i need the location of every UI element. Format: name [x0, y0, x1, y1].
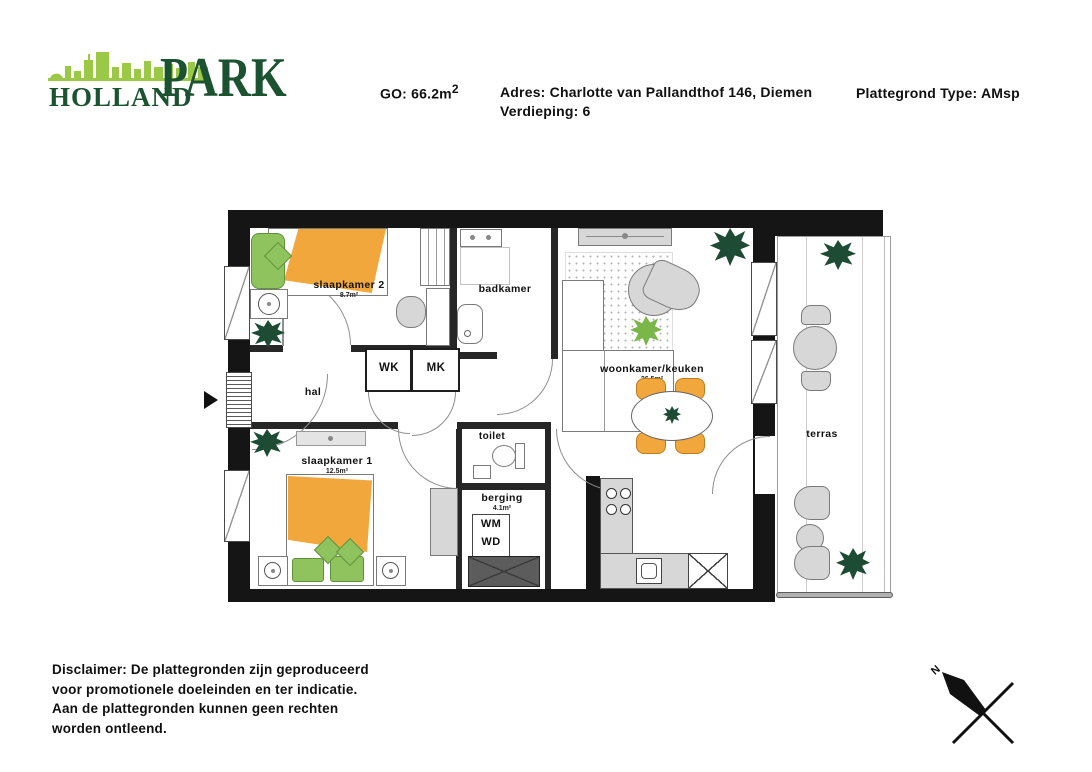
terras-chair [801, 371, 831, 391]
door-arc-slaapkamer1 [398, 429, 458, 489]
hob-burner [606, 504, 617, 515]
slaapkamer2-area: 8.7m² [340, 292, 358, 299]
badkamer-label: badkamer [479, 283, 532, 295]
compass-north-icon: N [928, 658, 1018, 748]
entrance-arrow-icon [204, 391, 218, 409]
wardrobe [430, 488, 458, 556]
wall-bottom [228, 589, 775, 602]
interior-wall [250, 345, 283, 352]
adres-label: Adres: Charlotte van Pallandthof 146, Di… [500, 84, 812, 100]
hob-burner [620, 488, 631, 499]
terras-table [793, 326, 837, 370]
plattegrond-type-label: Plattegrond Type: AMsp [856, 85, 1020, 101]
go-area-value: GO: 66.2m [380, 86, 452, 102]
logo-text-park: PARK [160, 46, 287, 110]
interior-wall [456, 483, 551, 490]
slaapkamer2-label: slaapkamer 2 [313, 279, 384, 291]
entrance-door [226, 372, 252, 428]
berging-label: berging [481, 492, 522, 504]
wd-label: WD [481, 536, 500, 548]
terras-lounge-chair [794, 486, 830, 520]
kitchen-wall-stub [586, 476, 600, 589]
wall-top [228, 210, 775, 228]
door-arc-badkamer [497, 359, 553, 415]
sofa-chaise [562, 280, 604, 354]
hollandpark-logo: HOLLAND PARK [48, 50, 263, 122]
disclaimer-line: Disclaimer: De plattegronden zijn geprod… [52, 660, 452, 680]
kitchen-appliance [688, 553, 728, 589]
closet-divider [410, 348, 413, 392]
interior-wall [450, 228, 457, 352]
wk-label: WK [379, 362, 399, 374]
basin-drain [267, 302, 271, 306]
tv-cabinet-knob [622, 233, 628, 239]
go-area-sup: 2 [452, 82, 459, 96]
interior-wall [545, 422, 551, 589]
plant-icon [250, 429, 284, 457]
plant-icon [251, 320, 285, 348]
sink-faucet [470, 235, 475, 240]
bathtub-drain [464, 330, 471, 337]
disclaimer-line: voor promotionele doeleinden en ter indi… [52, 680, 452, 700]
slaapkamer1-label: slaapkamer 1 [301, 455, 372, 467]
window-woonkamer-lower [751, 340, 777, 404]
toilet-tank [515, 443, 525, 469]
window-woonkamer-upper [751, 262, 777, 336]
terras-railing [776, 592, 893, 598]
toilet-bowl [492, 445, 516, 467]
hob-burner [620, 504, 631, 515]
desk-chair [396, 296, 426, 328]
wm-label: WM [481, 518, 501, 530]
toilet-sink [473, 465, 491, 479]
terras-lounge-chair [794, 546, 830, 580]
berging-area: 4.1m² [493, 505, 511, 512]
lamp-center [389, 569, 393, 573]
floorplan-page: HOLLAND PARK GO: 66.2m2 Adres: Charlotte… [0, 0, 1092, 772]
interior-wall [457, 352, 497, 359]
woonkamer-label: woonkamer/keuken [600, 363, 704, 375]
verdieping-label: Verdieping: 6 [500, 103, 591, 119]
terras-label: terras [806, 428, 838, 440]
bathroom-sink [460, 229, 502, 247]
bathtub [457, 304, 483, 344]
hal-label: hal [305, 386, 321, 398]
plant-icon [710, 228, 750, 266]
interior-wall [457, 422, 551, 429]
toilet-label: toilet [479, 431, 505, 442]
window-slaapkamer1 [224, 470, 250, 542]
terras-floor [777, 236, 891, 593]
sink-faucet [486, 235, 491, 240]
pillow-green [292, 558, 324, 582]
compass-label: N [929, 663, 943, 677]
go-area-label: GO: 66.2m2 [380, 82, 459, 102]
wall-top-terrace [775, 210, 883, 236]
door-arc-terras [712, 436, 770, 494]
terras-deck-line [884, 237, 885, 592]
disclaimer-line: Aan de plattegronden kunnen geen rechten [52, 699, 452, 719]
terras-chair [801, 305, 831, 325]
shower-tray [460, 247, 510, 285]
hob-burner [606, 488, 617, 499]
lamp-center [271, 569, 275, 573]
terras-deck-line [862, 237, 863, 592]
desk [426, 288, 450, 346]
mk-label: MK [427, 362, 446, 374]
storage-unit-dark [468, 556, 540, 587]
kitchen-sink-basin [641, 563, 657, 579]
interior-wall [551, 228, 558, 359]
wardrobe [420, 228, 450, 286]
window-slaapkamer2 [224, 266, 250, 340]
shelf-knob [328, 436, 333, 441]
disclaimer-line: worden ontleend. [52, 719, 452, 739]
disclaimer: Disclaimer: De plattegronden zijn geprod… [52, 660, 452, 738]
